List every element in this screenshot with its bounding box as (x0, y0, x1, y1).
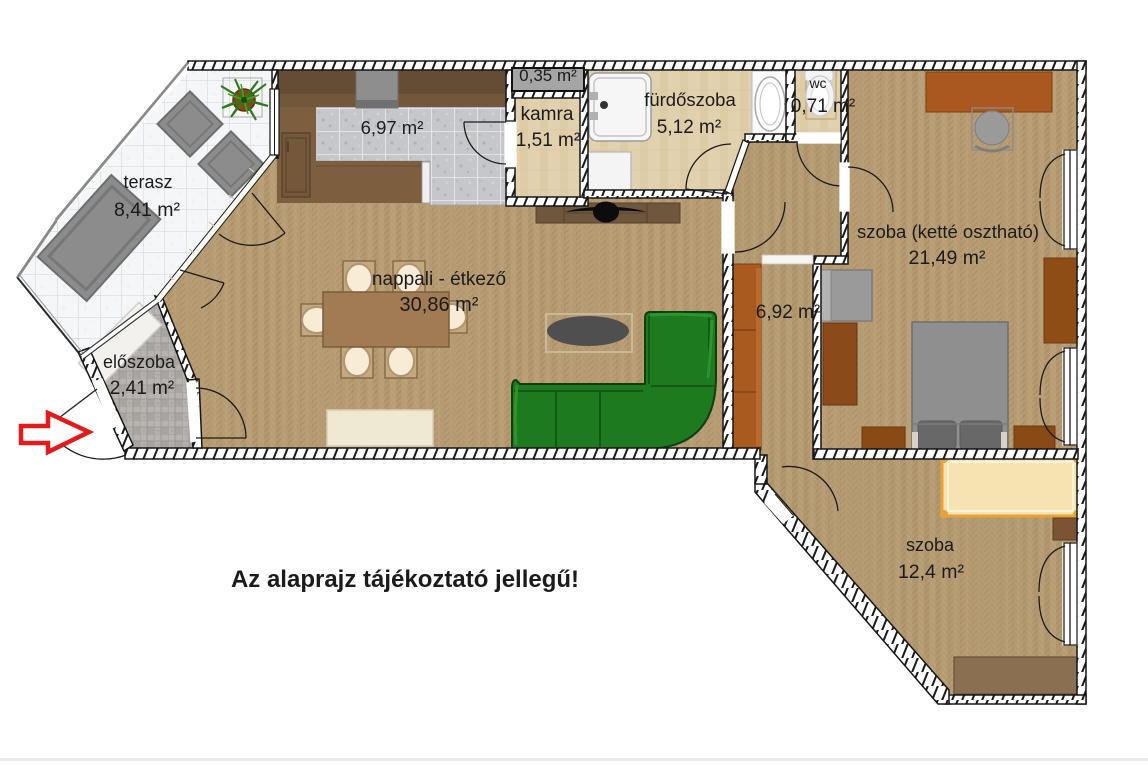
svg-text:fürdőszoba: fürdőszoba (644, 89, 736, 110)
svg-text:0,35 m²: 0,35 m² (519, 66, 577, 85)
svg-text:szoba: szoba (906, 535, 955, 555)
svg-text:30,86 m²: 30,86 m² (400, 294, 479, 316)
svg-text:1,51 m²: 1,51 m² (516, 130, 580, 151)
svg-text:terasz: terasz (123, 172, 172, 192)
svg-text:21,49 m²: 21,49 m² (909, 247, 986, 269)
svg-text:0,71 m²: 0,71 m² (791, 96, 855, 117)
svg-text:6,97 m²: 6,97 m² (361, 117, 424, 138)
svg-text:Az alaprajz tájékoztató jelleg: Az alaprajz tájékoztató jellegű! (231, 566, 579, 593)
svg-text:wc: wc (808, 75, 826, 91)
svg-text:8,41 m²: 8,41 m² (114, 199, 181, 221)
svg-text:előszoba: előszoba (103, 352, 176, 372)
svg-text:6,92 m²: 6,92 m² (756, 302, 820, 323)
svg-text:nappali - étkező: nappali - étkező (372, 269, 506, 290)
svg-text:kamra: kamra (521, 104, 574, 125)
svg-text:2,41 m²: 2,41 m² (110, 378, 174, 399)
svg-text:12,4 m²: 12,4 m² (898, 561, 965, 583)
svg-text:szoba (ketté osztható): szoba (ketté osztható) (857, 221, 1039, 242)
svg-text:5,12 m²: 5,12 m² (657, 117, 721, 138)
